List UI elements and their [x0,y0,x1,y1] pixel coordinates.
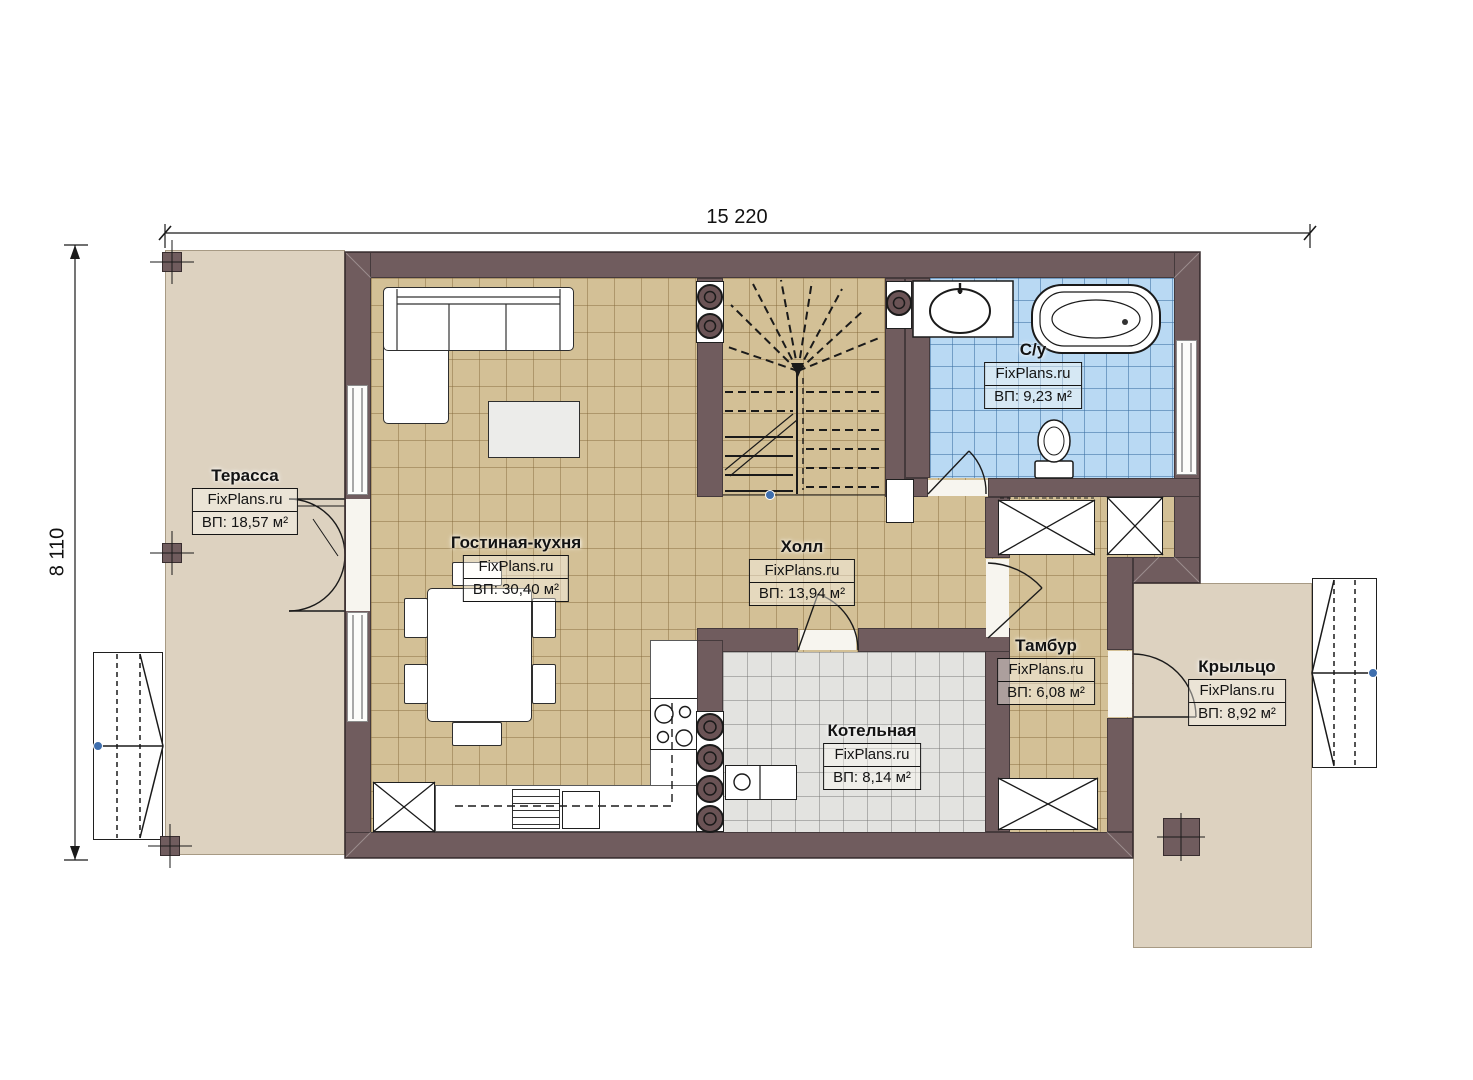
coffee-table [488,401,580,458]
room-area: ВП: 9,23 м² [985,385,1081,408]
watermark-box: FixPlans.ru ВП: 6,08 м² [997,658,1095,705]
watermark-box: FixPlans.ru ВП: 9,23 м² [984,362,1082,409]
dimension-height-label: 8 110 [47,528,70,577]
terrace-entry-steps [93,652,163,840]
door-opening-boiler [800,630,856,650]
room-label-terrace: Терасса FixPlans.ru ВП: 18,57 м² [192,466,298,535]
stair-railing-box [886,479,914,523]
room-area: ВП: 13,94 м² [750,582,854,605]
vent-box-stair-right [886,281,912,329]
dining-chair [532,664,556,704]
dining-chair [404,598,428,638]
terrace-post [162,252,182,272]
room-area: ВП: 30,40 м² [464,578,568,601]
watermark-text: FixPlans.ru [1189,680,1285,702]
vent-box-boiler [696,711,724,832]
watermark-text: FixPlans.ru [985,363,1081,385]
shaft-box-vestibule-south [998,778,1098,830]
door-opening-bathroom [928,480,988,496]
kitchen-appliance-drawers [512,789,560,829]
room-name: Гостиная-кухня [451,533,581,553]
watermark-box: FixPlans.ru ВП: 18,57 м² [192,488,298,535]
room-name: Крыльцо [1188,657,1286,677]
porch-entry-steps [1312,578,1377,768]
terrace-post [162,543,182,563]
wall-south [345,832,1133,858]
dining-chair [452,722,502,746]
shaft-box-east [1107,497,1163,555]
room-area: ВП: 6,08 м² [998,681,1094,704]
wall-bathroom-south-b [988,478,1200,497]
room-name: Холл [749,537,855,557]
vent-box-stair-left [696,281,724,343]
room-area: ВП: 8,92 м² [1189,702,1285,725]
watermark-text: FixPlans.ru [464,556,568,578]
room-name: Тамбур [997,636,1095,656]
room-label-bathroom: С/у FixPlans.ru ВП: 9,23 м² [984,340,1082,409]
wall-east-stub [1133,557,1200,583]
watermark-box: FixPlans.ru ВП: 13,94 м² [749,559,855,606]
room-label-hall: Холл FixPlans.ru ВП: 13,94 м² [749,537,855,606]
terrace-deck [165,250,345,855]
room-name: Терасса [192,466,298,486]
watermark-text: FixPlans.ru [824,744,920,766]
room-label-porch: Крыльцо FixPlans.ru ВП: 8,92 м² [1188,657,1286,726]
wall-vestibule-east-a [1107,557,1133,650]
boiler-unit [725,765,797,800]
window-west-a [347,385,368,495]
dimension-width-label: 15 220 [706,206,767,229]
dining-table [427,588,532,722]
floor-plan-canvas: 15 220 8 110 Терасса FixPlans.ru ВП: 18,… [0,0,1473,1080]
terrace-post [160,836,180,856]
shaft-box-kitchen [373,782,435,832]
watermark-text: FixPlans.ru [998,659,1094,681]
room-label-boiler: Котельная FixPlans.ru ВП: 8,14 м² [823,721,921,790]
door-opening-entrance [1108,651,1132,717]
watermark-box: FixPlans.ru ВП: 30,40 м² [463,555,569,602]
watermark-box: FixPlans.ru ВП: 8,92 м² [1188,679,1286,726]
porch-post [1163,818,1200,856]
cooktop [650,698,698,750]
watermark-text: FixPlans.ru [750,560,854,582]
room-label-living-kitchen: Гостиная-кухня FixPlans.ru ВП: 30,40 м² [451,533,581,602]
wall-vestibule-east-b [1107,718,1133,832]
window-bathroom-east [1176,340,1197,475]
room-name: С/у [984,340,1082,360]
room-area: ВП: 8,14 м² [824,766,920,789]
dining-chair [404,664,428,704]
watermark-text: FixPlans.ru [193,489,297,511]
room-label-vestibule: Тамбур FixPlans.ru ВП: 6,08 м² [997,636,1095,705]
door-opening-vestibule [986,559,1009,637]
watermark-box: FixPlans.ru ВП: 8,14 м² [823,743,921,790]
dining-chair [532,598,556,638]
wall-north [345,252,1200,278]
room-name: Котельная [823,721,921,741]
door-opening-terrace [346,499,370,611]
room-area: ВП: 18,57 м² [193,511,297,534]
window-west-b [347,612,368,722]
kitchen-oven [562,791,600,829]
sofa-body [383,287,574,351]
shaft-box-hall-north [998,500,1095,555]
porch-deck [1133,583,1312,948]
